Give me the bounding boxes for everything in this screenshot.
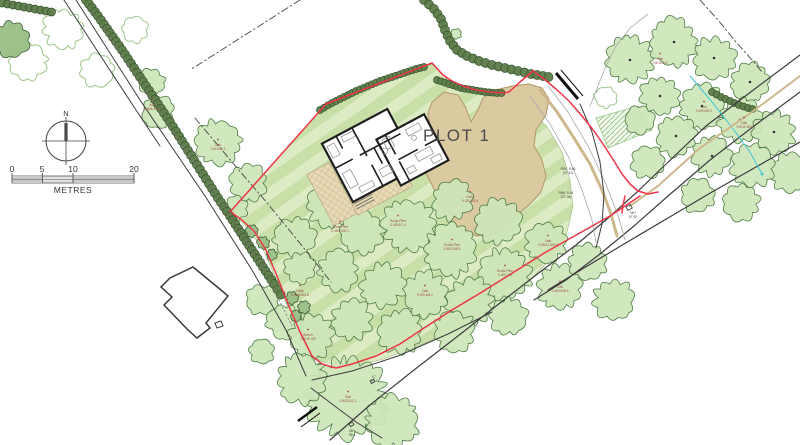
scale-tick-0: 0 (10, 164, 15, 174)
plot-1-label: PLOT 1 (423, 126, 490, 146)
svg-text:Scots Pine0.55/10/8.8: Scots Pine0.55/10/8.8 (444, 243, 461, 251)
scale-tick-10: 10 (68, 164, 77, 174)
scale-tick-20: 20 (129, 164, 138, 174)
site-plan: Oak0.6/11/9.2Ash0.45/8.4/7.2Scots Pine0.… (0, 0, 800, 445)
scale-tick-5: 5 (40, 164, 45, 174)
svg-text:RWL 9.64(97.08): RWL 9.64(97.08) (559, 191, 574, 199)
scale-unit-label: METRES (54, 185, 92, 195)
svg-text:MH97.82: MH97.82 (629, 211, 638, 219)
compass-north-label: N (63, 109, 68, 118)
svg-text:Scots Pine0.45/9.5/8.1: Scots Pine0.45/9.5/8.1 (331, 225, 349, 233)
svg-text:MH96.4: MH96.4 (349, 429, 356, 437)
svg-text:Scots Pine0.4/8.6/7.4: Scots Pine0.4/8.6/7.4 (390, 219, 406, 227)
svg-text:Scots Pine0.5/9.2/8: Scots Pine0.5/9.2/8 (497, 269, 513, 277)
svg-text:RWL 9.86(97.42): RWL 9.86(97.42) (561, 167, 576, 175)
site-plan-drawing: Oak0.6/11/9.2Ash0.45/8.4/7.2Scots Pine0.… (0, 0, 800, 445)
